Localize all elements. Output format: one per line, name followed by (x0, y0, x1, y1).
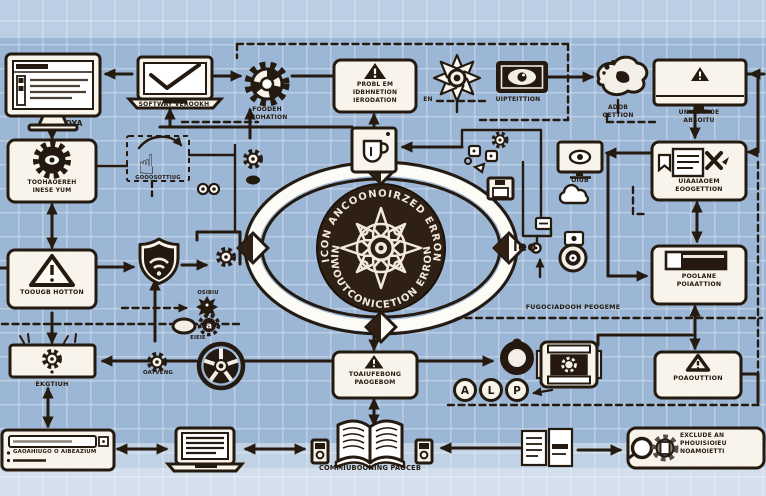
flowchart-canvas: ICON ANCOONOIRZED ERRON NIWOUTCONICETION… (0, 0, 766, 496)
leo-label: leo (510, 240, 540, 257)
laptop-icon (168, 428, 242, 471)
book-caption-label: COMMIUBOONING PAOCEB (300, 464, 440, 473)
osibiu-label: OSIBIU (190, 290, 226, 297)
oya-label: OYA (60, 119, 88, 129)
pool-box-label: POOLANEPOIAATTION (654, 273, 744, 289)
cloud-icon (560, 185, 588, 203)
badge-letter-a: A (461, 385, 470, 397)
tiny-gear-icon (218, 249, 234, 265)
eieie-label: EIEIE (180, 335, 216, 342)
document-box-label: UIAAIAOEMEOOGETTION (654, 178, 744, 194)
troubleshoot-warning-box (8, 250, 96, 308)
hand-caption-label: GOOOSOTTIUG (124, 175, 192, 182)
mug-icon (364, 141, 381, 162)
monitor-warning-icon (654, 60, 746, 114)
alp-badges: A L P (455, 380, 528, 401)
shield-wifi-icon (140, 239, 178, 284)
gear-foodeh-icon (248, 65, 286, 103)
star-flower-icon (434, 55, 480, 101)
mug-box (352, 128, 396, 172)
software-version-label: SOFTWAY VEROOKH (126, 101, 222, 109)
donut-icon (504, 339, 530, 372)
gear-letter: a (206, 322, 212, 332)
troubleshoot-label: TOOUGB HOTTON (10, 289, 94, 297)
monitor-eye-icon (558, 142, 602, 178)
badge-letter-p: P (513, 385, 521, 397)
documents-stack-icon (522, 429, 572, 466)
oval-gear-icons: a (173, 316, 219, 335)
blob-rock-icon (598, 57, 647, 94)
magnifier-icon (633, 439, 652, 458)
eye-viewer-icon (497, 62, 547, 92)
inspection-prefix-label: EN (420, 96, 436, 104)
oiub-label: OIUB (558, 177, 602, 185)
search-text-label: GAOAHIUGO O AIBEAZIUM (13, 449, 109, 456)
fug-caption-label: FUGOCIADOOH PEOGEME (518, 303, 628, 311)
inspection-label: UIPTEITTION (486, 96, 550, 104)
central-emblem: ICON ANCOONOIRZED ERRON NIWOUTCONICETION… (238, 154, 524, 342)
resolution-label: POAOUTTION (657, 374, 739, 382)
foodeh-label: FOODEHLUOHATION (233, 106, 301, 122)
oval-ring-icon (173, 319, 195, 333)
wheel-icon (199, 344, 243, 388)
engine-label: EKGTIUH (12, 380, 92, 388)
badge-letter-l: L (488, 385, 495, 397)
blob-label: ADOBGETTION (588, 104, 648, 120)
gearbox-label: TOOHAOEREHINESE YUM (10, 179, 94, 195)
oatveng-gear-icon (149, 354, 165, 370)
gear-a-icon: a (200, 316, 219, 335)
small-gear-icon (245, 151, 261, 185)
oatveng-label: OATVENG (132, 370, 184, 377)
gray-gear-icon (654, 437, 676, 459)
monitor-error-label: UNIAIATIOEABSOITU (650, 109, 748, 125)
open-book-icon (312, 421, 432, 468)
exclude-label: EXCLUDE ANPHOUISIOIEUNOAMOIETTI (680, 432, 762, 455)
problem-identification-label: PROBL EMIDBHNETIONIERODATION (337, 81, 413, 104)
goggles-icon (198, 184, 219, 194)
ts-process-label: TOAIUFEBONGPAOGEBOM (335, 371, 415, 387)
projector-gear-icon (537, 342, 601, 387)
